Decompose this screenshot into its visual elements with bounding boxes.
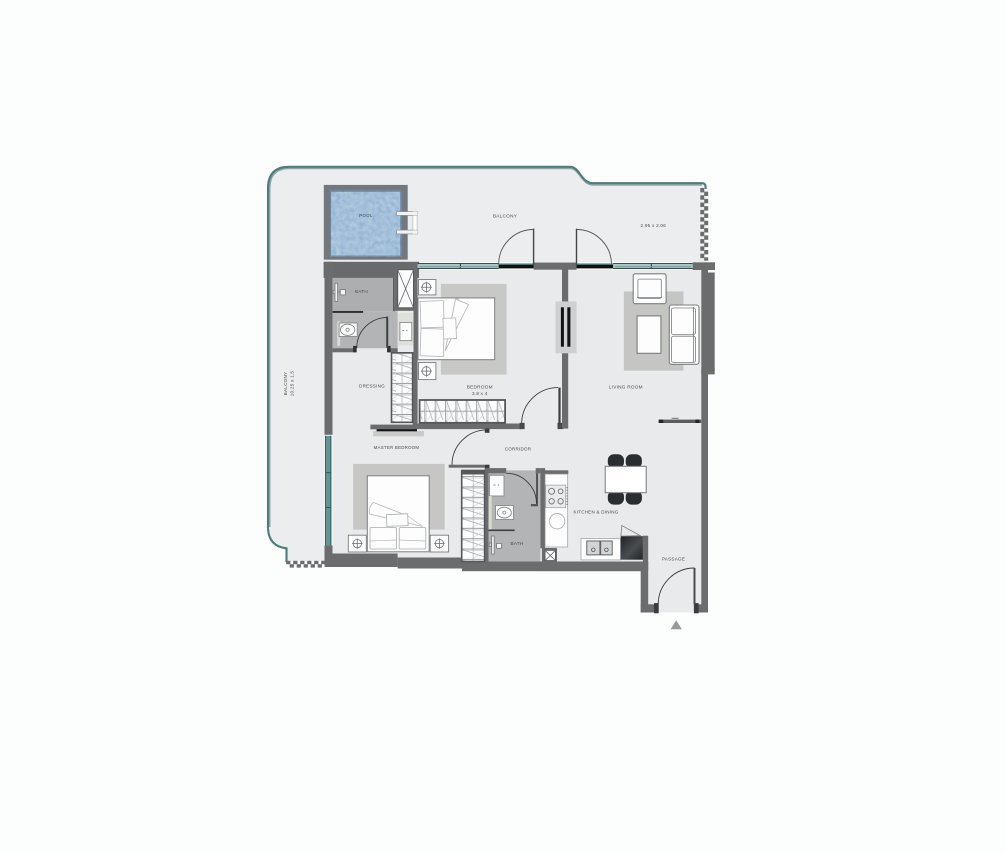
svg-text:BALCONY: BALCONY xyxy=(493,213,518,218)
svg-text:10.25 x 1.5: 10.25 x 1.5 xyxy=(290,371,295,397)
svg-text:BATH: BATH xyxy=(511,541,524,546)
svg-text:POOL: POOL xyxy=(359,213,373,218)
svg-text:BALCONY: BALCONY xyxy=(283,372,288,396)
svg-text:3.8 x 4: 3.8 x 4 xyxy=(472,391,488,396)
svg-text:DRESSING: DRESSING xyxy=(359,383,385,388)
svg-text:MASTER BEDROOM: MASTER BEDROOM xyxy=(374,445,420,450)
svg-text:LIVING ROOM: LIVING ROOM xyxy=(609,384,643,389)
svg-text:BATH: BATH xyxy=(355,289,368,294)
svg-text:KITCHEN & DINING: KITCHEN & DINING xyxy=(573,509,618,514)
svg-text:CORRIDOR: CORRIDOR xyxy=(505,446,532,451)
svg-text:BEDROOM: BEDROOM xyxy=(467,384,493,389)
svg-text:PASSAGE: PASSAGE xyxy=(662,556,685,561)
svg-text:2.95 x 2.06: 2.95 x 2.06 xyxy=(641,223,667,228)
